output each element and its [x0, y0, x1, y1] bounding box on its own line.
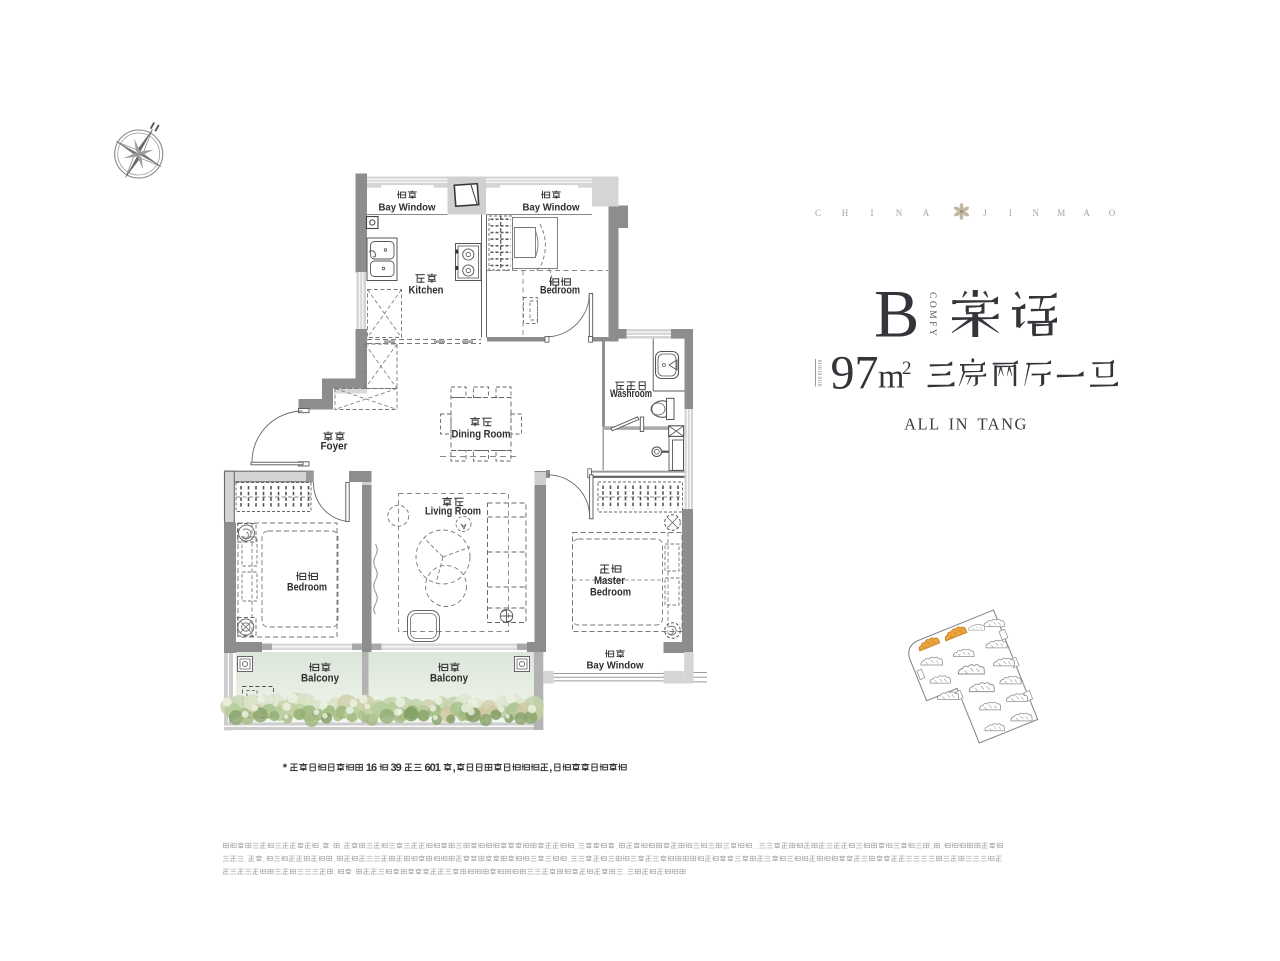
svg-text:Bedroom: Bedroom — [590, 587, 631, 599]
svg-text:.: . — [753, 844, 755, 851]
svg-text:Bay Window: Bay Window — [587, 660, 645, 672]
svg-text:.: . — [245, 857, 247, 864]
svg-text:Bay Window: Bay Window — [523, 202, 581, 214]
svg-text:.: . — [341, 844, 343, 851]
svg-text:Bay Window: Bay Window — [379, 202, 437, 214]
svg-text:Washroom: Washroom — [610, 388, 652, 400]
svg-text:Bedroom: Bedroom — [540, 285, 580, 297]
svg-text:.: . — [319, 844, 321, 851]
svg-text:.: . — [333, 857, 335, 864]
svg-text:2: 2 — [902, 358, 912, 379]
svg-text:,: , — [549, 762, 552, 774]
svg-text:H: H — [842, 208, 849, 218]
svg-text:Balcony: Balcony — [430, 673, 469, 685]
svg-text:Kitchen: Kitchen — [409, 285, 444, 297]
svg-text:,: , — [453, 762, 456, 774]
svg-text:I: I — [871, 208, 874, 218]
svg-text:Balcony: Balcony — [301, 673, 340, 685]
svg-text:.: . — [930, 844, 932, 851]
svg-text:N: N — [896, 208, 903, 218]
svg-text:M: M — [1057, 208, 1065, 218]
svg-text:ALL IN TANG: ALL IN TANG — [904, 415, 1028, 434]
svg-text:.: . — [330, 844, 332, 851]
svg-text:A: A — [1083, 208, 1090, 218]
svg-text:Master: Master — [594, 575, 626, 587]
svg-text:.: . — [624, 870, 626, 877]
svg-text:Bedroom: Bedroom — [287, 582, 327, 594]
svg-text:COMFY: COMFY — [927, 292, 937, 338]
svg-text:.: . — [941, 844, 943, 851]
svg-text:.: . — [567, 857, 569, 864]
svg-text:.: . — [575, 844, 577, 851]
svg-text:C: C — [815, 208, 821, 218]
svg-text:.: . — [615, 844, 617, 851]
svg-text:97: 97 — [831, 347, 879, 400]
svg-text:6: 6 — [371, 762, 377, 774]
svg-text:N: N — [1033, 208, 1040, 218]
svg-text:J: J — [983, 208, 987, 218]
svg-text:1: 1 — [435, 762, 441, 774]
svg-text:A: A — [923, 208, 930, 218]
svg-text:Foyer: Foyer — [321, 441, 349, 453]
svg-text:Living Room: Living Room — [425, 506, 481, 518]
svg-text:9: 9 — [396, 762, 402, 774]
svg-text:B: B — [874, 276, 919, 352]
svg-text:I: I — [1009, 208, 1012, 218]
svg-text:.: . — [334, 870, 336, 877]
svg-text:*: * — [283, 762, 288, 774]
svg-text:.: . — [352, 870, 354, 877]
svg-text:.: . — [756, 844, 758, 851]
svg-text:O: O — [1109, 208, 1116, 218]
svg-text:Dining Room: Dining Room — [452, 429, 511, 441]
svg-text:m: m — [878, 359, 904, 396]
svg-text:.: . — [263, 857, 265, 864]
